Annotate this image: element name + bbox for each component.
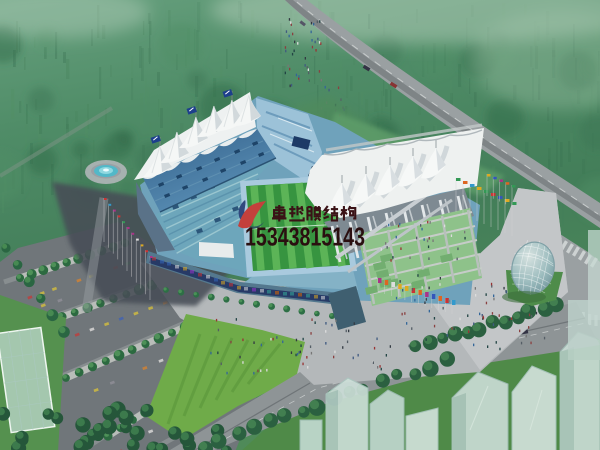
svg-text:15343815143: 15343815143 xyxy=(245,222,365,252)
